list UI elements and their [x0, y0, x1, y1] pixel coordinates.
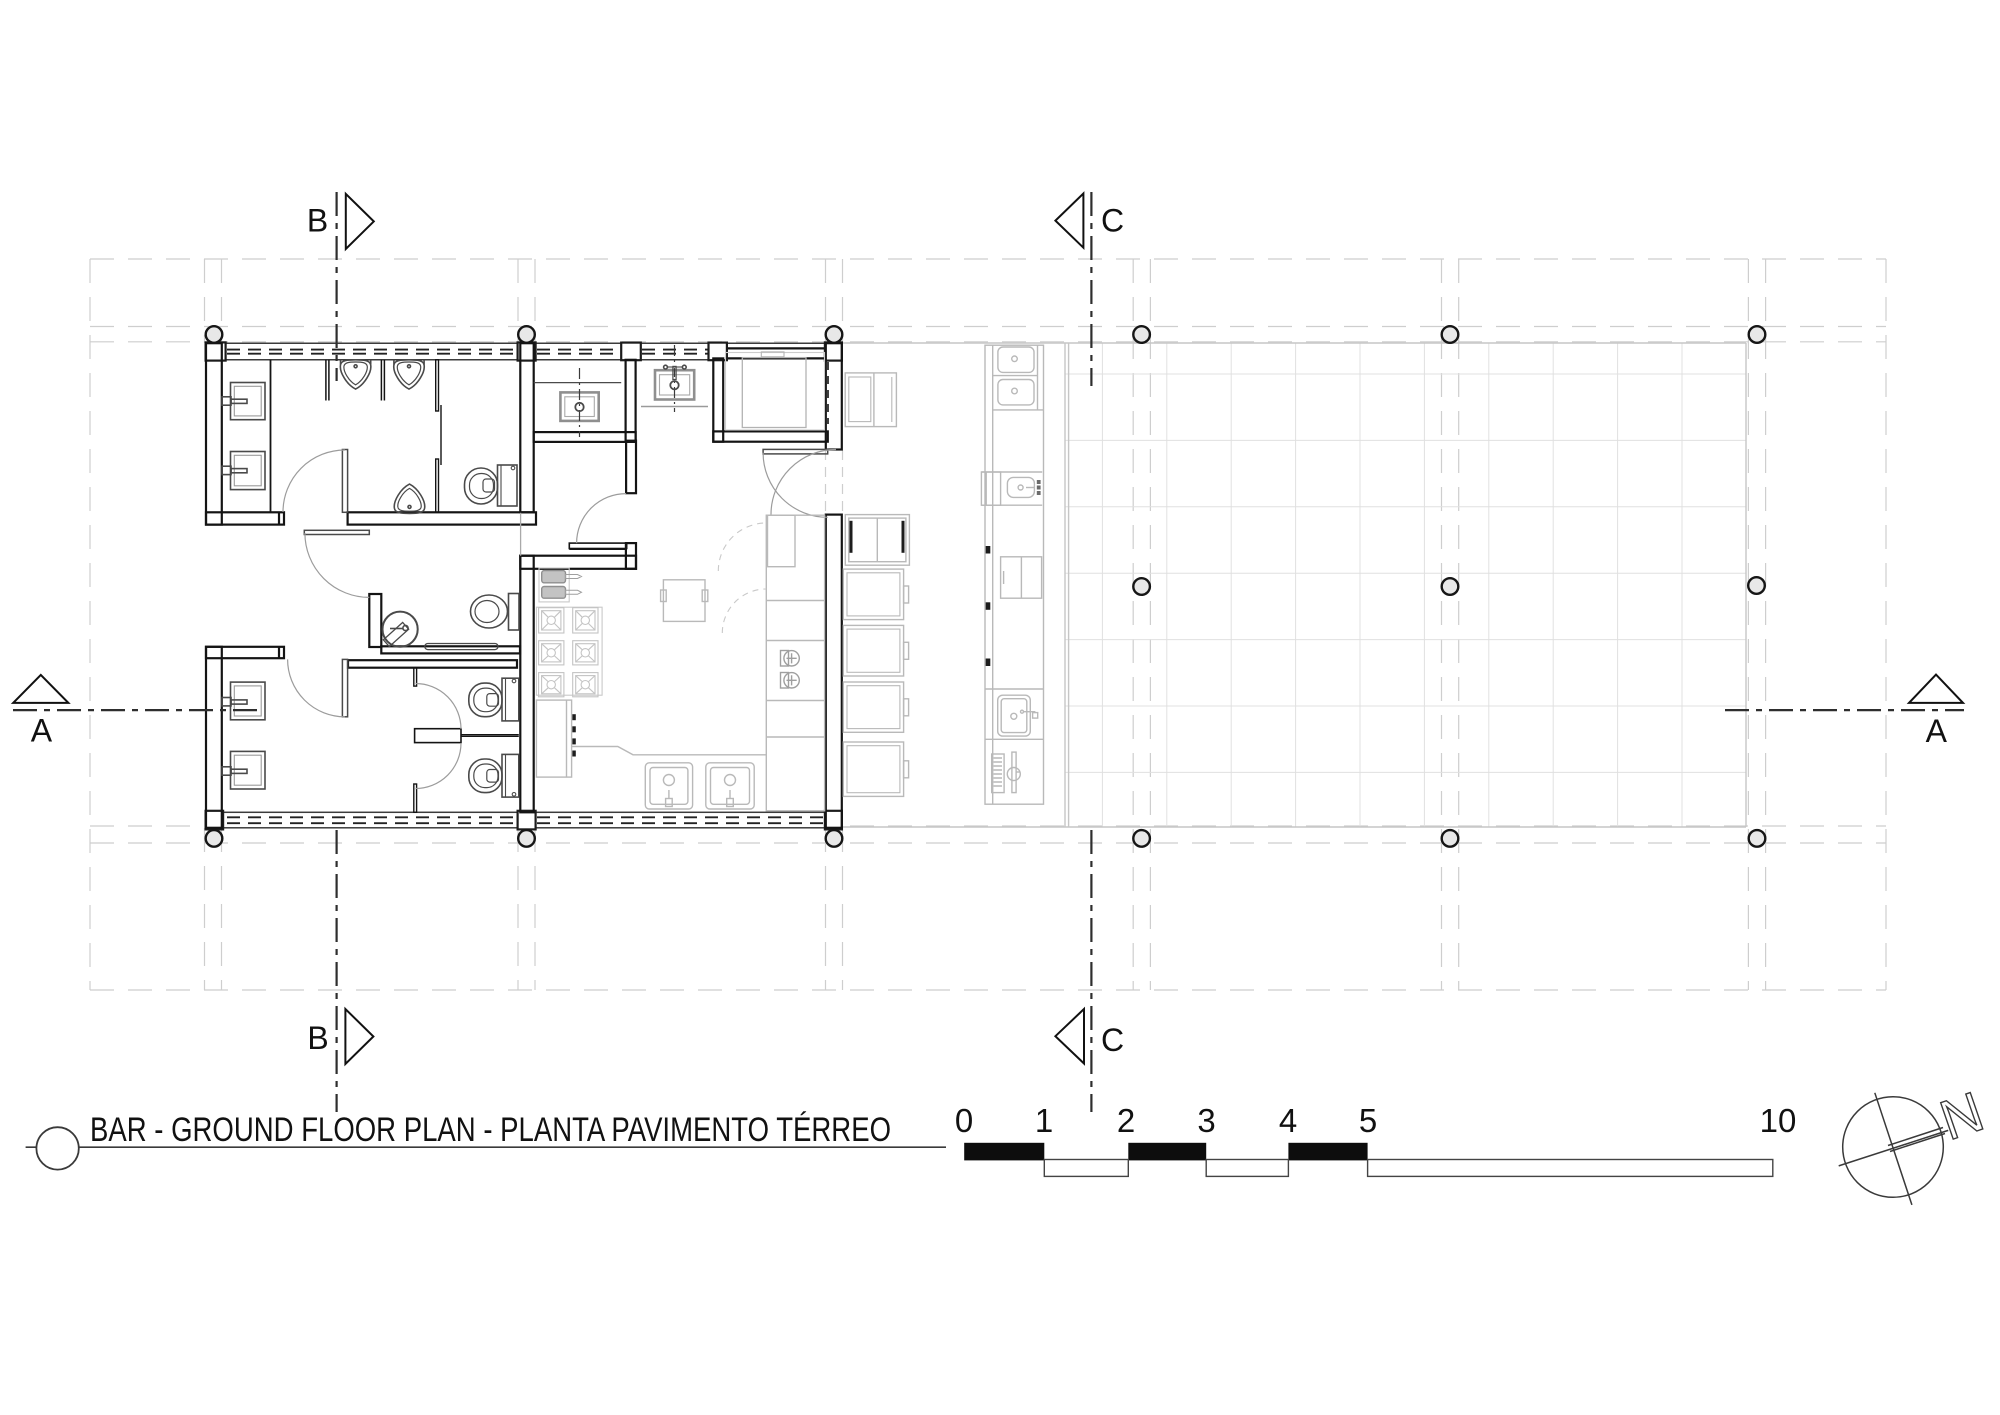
- svg-text:4: 4: [1279, 1102, 1297, 1139]
- svg-text:B: B: [307, 203, 328, 239]
- svg-text:A: A: [31, 713, 53, 749]
- svg-text:C: C: [1101, 1022, 1124, 1058]
- svg-text:1: 1: [1035, 1102, 1053, 1139]
- svg-text:BAR - GROUND FLOOR PLAN - PLAN: BAR - GROUND FLOOR PLAN - PLANTA PAVIMEN…: [90, 1111, 891, 1149]
- svg-text:0: 0: [955, 1102, 973, 1139]
- svg-text:3: 3: [1197, 1102, 1215, 1139]
- svg-text:B: B: [307, 1020, 328, 1056]
- svg-text:5: 5: [1359, 1102, 1377, 1139]
- svg-text:C: C: [1101, 203, 1124, 239]
- svg-text:10: 10: [1760, 1102, 1797, 1139]
- svg-text:A: A: [1926, 713, 1948, 749]
- svg-text:2: 2: [1117, 1102, 1135, 1139]
